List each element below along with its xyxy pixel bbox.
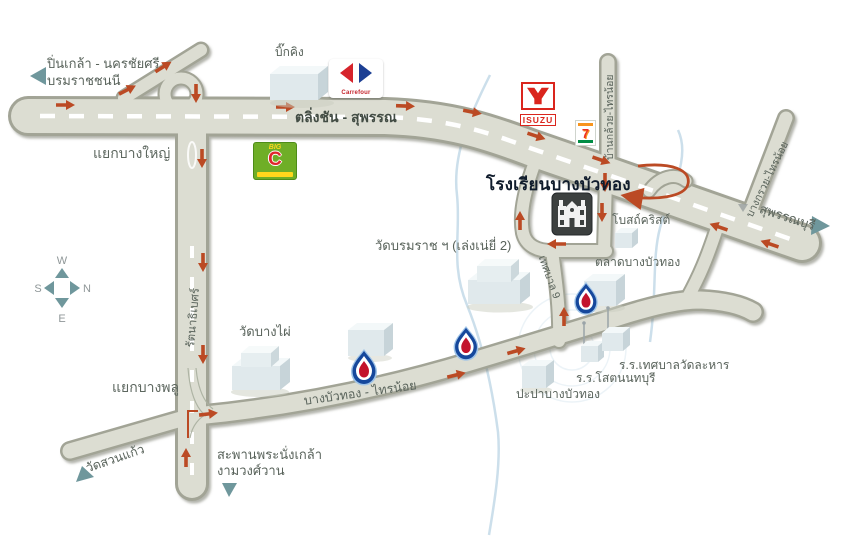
label-phra-nangklao-bridge: สะพานพระนั่งเกล้า <box>217 448 322 463</box>
pointer-phra-nangklao <box>222 483 237 497</box>
label-borommaratchachonnani: บรมราชชนนี <box>47 74 121 89</box>
isuzu-logo: ISUZU <box>518 82 558 128</box>
seven-eleven-seven: 7 <box>582 128 589 139</box>
compass: W S N E <box>34 255 91 325</box>
label-junction-bang-yai: แยกบางใหญ่ <box>93 145 170 161</box>
big-c-logo: BIG C <box>253 142 297 180</box>
carrefour-icon <box>338 62 374 84</box>
label-junction-bang-phlu: แยกบางพลู <box>112 379 179 395</box>
label-sot-school: ร.ร.โสตนนทบุรี <box>576 372 656 386</box>
roads-layer <box>28 50 802 484</box>
school-icon <box>552 193 592 235</box>
wat-borommaracha-building <box>467 259 533 313</box>
wat-bang-phai-building <box>231 346 290 397</box>
road-label-ban-kluai: บ้านกล้วย-ไทรน้อย <box>604 74 616 160</box>
big-c-bottom-bar <box>257 172 293 177</box>
label-wat-bang-phai: วัดบางไผ่ <box>239 325 291 340</box>
label-waterworks: ปะปาบางบัวทอง <box>516 388 600 402</box>
big-c-letter: C <box>254 152 296 168</box>
compass-right: N <box>83 283 91 295</box>
seven-eleven-green-bar <box>578 140 593 143</box>
label-wat-borommaracha: วัดบรมราช ฯ (เล่งเน่ยี่ 2) <box>375 239 511 254</box>
label-church: โบสถ์คริสต์ <box>612 214 670 228</box>
compass-top: W <box>57 255 68 267</box>
label-pin-klao: ปิ่นเกล้า - นครชัยศรี <box>47 57 160 72</box>
isuzu-emblem <box>521 82 555 110</box>
compass-bottom: E <box>58 313 65 325</box>
church-building <box>615 228 638 248</box>
label-ngam-wong-wan: งามวงศ์วาน <box>217 464 285 479</box>
isuzu-wordmark: ISUZU <box>520 114 557 126</box>
bang-bua-thong-school-map: W S N E <box>0 0 850 543</box>
label-market: ตลาดบางบัวทอง <box>595 256 680 270</box>
seven-eleven-logo: 7 <box>575 120 596 146</box>
big-king-building <box>270 66 334 108</box>
label-big-king: บิ๊กคิง <box>275 46 304 60</box>
school-title: โรงเรียนบางบัวทอง <box>486 175 631 195</box>
pointer-pin-klao <box>30 67 46 85</box>
compass-left: S <box>34 283 41 295</box>
compass-rose-icon <box>44 268 80 308</box>
temple-annex-building <box>348 323 393 362</box>
ptt-station-icon <box>454 326 479 361</box>
road-fills <box>28 50 802 484</box>
carrefour-wordmark: Carrefour <box>333 90 379 96</box>
carrefour-logo: Carrefour <box>329 59 383 98</box>
isuzu-icon <box>524 85 552 107</box>
label-wat-lahan-school: ร.ร.เทศบาลวัดละหาร <box>619 359 729 373</box>
road-label-taling-chan-suphan: ตลิ่งชัน - สุพรรณ <box>295 109 397 125</box>
